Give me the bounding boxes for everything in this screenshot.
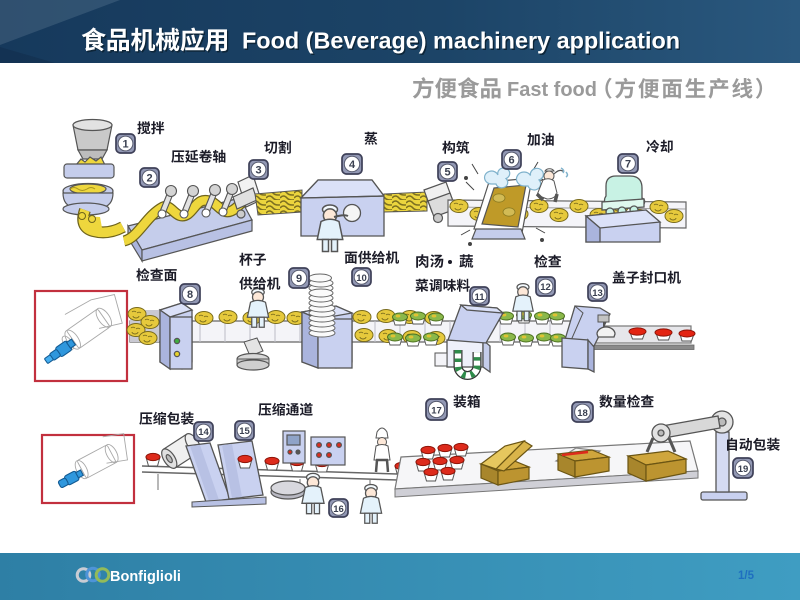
- svg-text:12: 12: [540, 282, 551, 293]
- svg-text:7: 7: [625, 158, 631, 170]
- svg-text:6: 6: [508, 154, 514, 166]
- svg-text:Fast food: Fast food: [507, 79, 597, 101]
- svg-text:5: 5: [444, 166, 450, 178]
- svg-text:11: 11: [474, 292, 485, 303]
- svg-text:Food (Beverage) machinery appl: Food (Beverage) machinery application: [242, 28, 680, 54]
- svg-text:8: 8: [187, 289, 193, 301]
- svg-text:13: 13: [592, 288, 603, 299]
- svg-text:15: 15: [239, 426, 250, 437]
- svg-text:3: 3: [255, 164, 261, 176]
- svg-text:1: 1: [122, 138, 128, 150]
- svg-text:Bonfiglioli: Bonfiglioli: [110, 569, 181, 585]
- svg-text:14: 14: [198, 427, 209, 438]
- svg-text:9: 9: [296, 273, 302, 285]
- svg-text:1/5: 1/5: [738, 570, 755, 582]
- svg-text:18: 18: [577, 408, 588, 419]
- svg-text:10: 10: [356, 273, 367, 284]
- svg-text:4: 4: [349, 159, 356, 171]
- svg-text:16: 16: [333, 504, 344, 515]
- svg-text:2: 2: [146, 172, 152, 184]
- svg-text:19: 19: [738, 464, 749, 475]
- svg-text:17: 17: [431, 405, 442, 416]
